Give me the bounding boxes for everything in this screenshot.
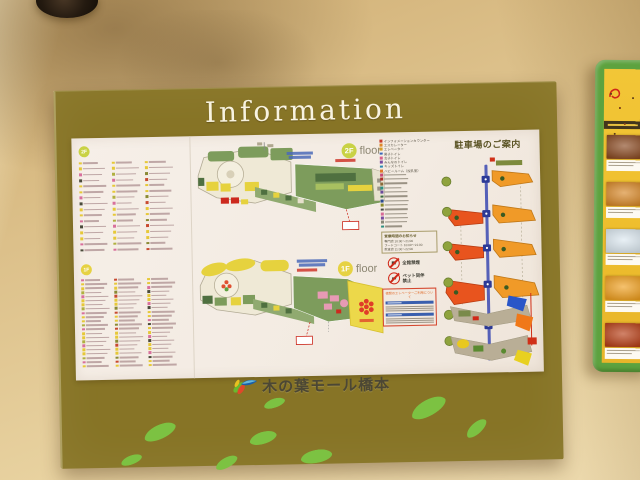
mall-leaf-logo-icon <box>231 375 257 397</box>
floor-badge-1f: 1F <box>338 261 353 276</box>
menu-card <box>606 229 640 265</box>
business-hours-box: 営業時間のお知らせ 専門店 10:00〜21:00フードコート 10:00〜21… <box>381 231 437 254</box>
notice-subheader <box>386 312 434 317</box>
leaf-shape <box>120 452 144 468</box>
security-camera-dome <box>36 0 98 18</box>
leaf-shape <box>464 416 490 441</box>
directory-badge-2f: 2F <box>78 146 89 157</box>
information-signboard: Information 2F 1F <box>53 81 563 469</box>
no-pets-icon <box>388 273 400 285</box>
directory-section-2f: 2F <box>78 145 174 254</box>
leaf-shape <box>263 395 287 411</box>
leaf-shape <box>408 391 449 423</box>
menu-card <box>605 276 640 312</box>
notice-subheader <box>386 300 434 305</box>
no-smoking-rule: 全館禁煙 <box>388 256 438 269</box>
sign-title: Information <box>54 89 558 132</box>
directory-row <box>147 246 175 252</box>
no-pets-rule: ペット同伴禁止 <box>388 272 438 285</box>
floor-badge-2f: 2F <box>341 143 356 158</box>
elevator-notice-box: 夜間のエレベーターご利用について <box>382 288 437 327</box>
poster-header-band <box>604 121 640 129</box>
map-panel: 2F 1F <box>71 130 544 381</box>
business-hours-row: 飲食店 11:00〜22:00 <box>384 246 434 251</box>
parking-guide: 駐車場のご案内 <box>437 130 542 374</box>
leaf-shape <box>248 428 278 448</box>
directory-row <box>80 247 108 253</box>
directory-row <box>114 246 142 252</box>
directory-badge-1f: 1F <box>81 264 92 275</box>
leaf-shape <box>300 447 334 466</box>
legend-column: インフォメーションカウンターエスカレーターエレベーター男子トイレ女子トイレみんな… <box>379 138 439 327</box>
leaf-shape <box>214 452 240 472</box>
legend-row <box>381 223 437 228</box>
elevator-notice-title: 夜間のエレベーターご利用について <box>385 291 433 300</box>
facility-legend: インフォメーションカウンターエスカレーターエレベーター男子トイレ女子トイレみんな… <box>379 138 437 229</box>
menu-card <box>606 135 640 171</box>
leaf-shape <box>142 418 179 445</box>
menu-card <box>606 182 640 218</box>
directory-row <box>83 364 111 369</box>
directory-section-1f: 1F <box>81 263 177 369</box>
directory-row <box>149 363 177 368</box>
store-directory: 2F 1F <box>71 136 195 380</box>
directory-row <box>116 363 144 368</box>
parking-guide-title: 駐車場のご案内 <box>437 137 537 152</box>
menu-card <box>605 323 640 359</box>
confetti-dots <box>610 93 612 95</box>
doodle-icon <box>606 85 624 103</box>
parking-diagram <box>439 152 541 374</box>
floor-label-2f: 2F floor <box>341 143 381 159</box>
photo-of-information-wall: Information 2F 1F <box>0 0 640 480</box>
menu-poster <box>602 69 640 363</box>
floor-label-1f: 1F floor <box>338 261 378 277</box>
menu-bulletin-board <box>593 60 640 373</box>
no-smoking-icon <box>388 257 400 269</box>
mall-logo-text: 木の葉モール橋本 <box>262 373 390 396</box>
